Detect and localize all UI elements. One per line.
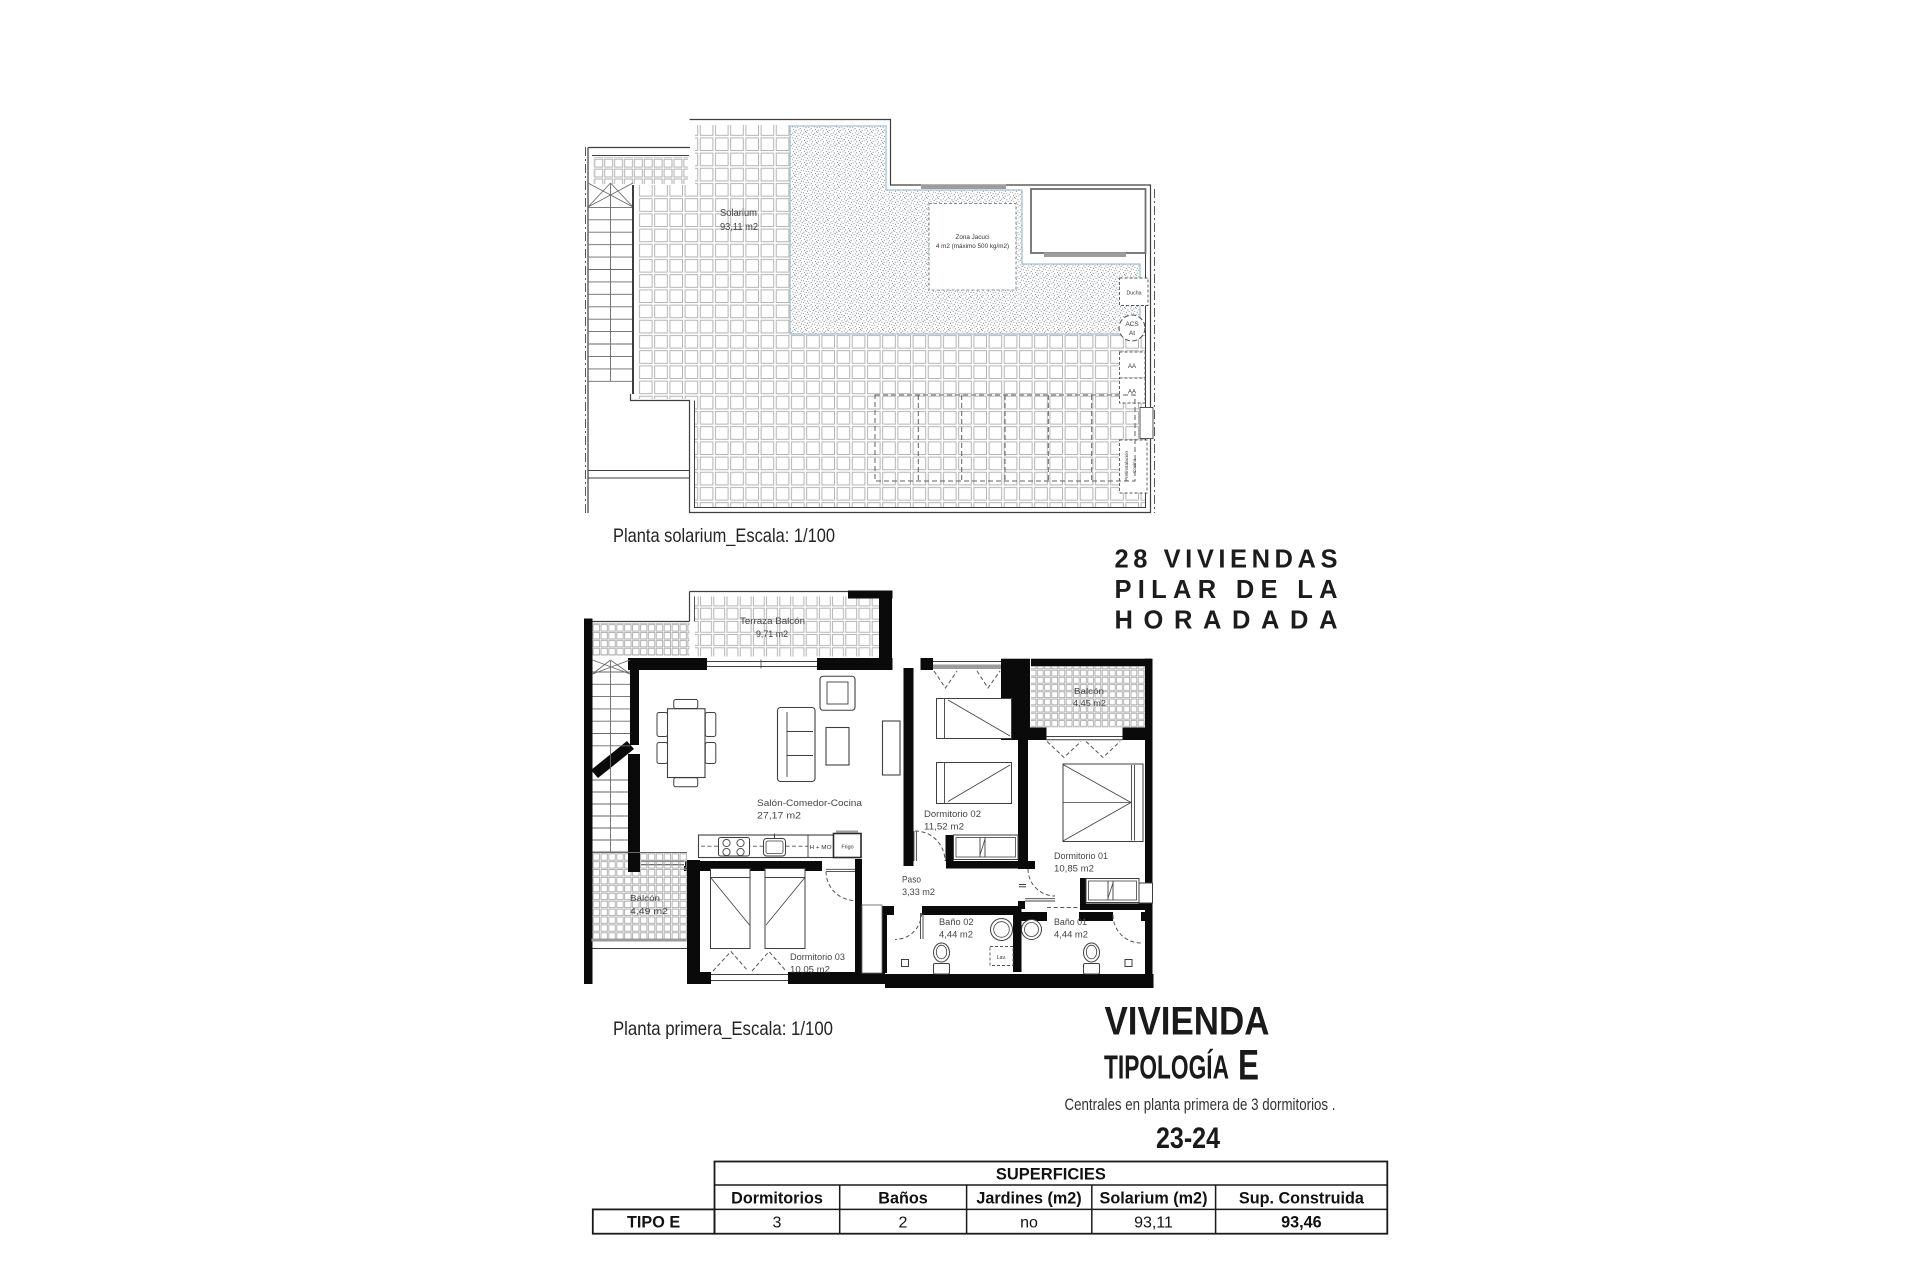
svg-text:4,49 m2: 4,49 m2	[630, 906, 668, 916]
svg-text:Solarium (m2): Solarium (m2)	[1100, 1190, 1208, 1208]
svg-text:Sup. Construida: Sup. Construida	[1239, 1190, 1365, 1208]
svg-text:Paso: Paso	[902, 875, 921, 885]
svg-text:VIVIENDA: VIVIENDA	[1105, 1000, 1270, 1044]
svg-text:Baños: Baños	[878, 1190, 927, 1208]
svg-text:4,44 m2: 4,44 m2	[1054, 930, 1088, 940]
svg-text:Balcón: Balcón	[630, 893, 660, 903]
svg-text:Zona Jacuci: Zona Jacuci	[956, 234, 990, 241]
svg-text:no: no	[1020, 1215, 1038, 1232]
svg-text:H + MO: H + MO	[810, 845, 832, 851]
svg-text:TIPO E: TIPO E	[627, 1214, 680, 1232]
svg-text:At: At	[1129, 330, 1135, 337]
svg-text:Frigo: Frigo	[841, 845, 853, 851]
svg-text:Planta primera_Escala: 1/100: Planta primera_Escala: 1/100	[613, 1018, 833, 1040]
svg-text:Centrales en planta primera de: Centrales en planta primera de 3 dormito…	[1065, 1096, 1336, 1114]
svg-text:ACS: ACS	[1125, 321, 1139, 328]
svg-text:11,52 m2: 11,52 m2	[924, 822, 964, 832]
svg-text:Terraza Balcón: Terraza Balcón	[740, 616, 805, 626]
svg-text:4,44 m2: 4,44 m2	[939, 930, 973, 940]
svg-text:4,45 m2: 4,45 m2	[1073, 698, 1106, 708]
svg-text:Ducha: Ducha	[1127, 291, 1142, 297]
svg-text:AA: AA	[1128, 364, 1136, 370]
svg-text:93,46: 93,46	[1281, 1214, 1322, 1232]
svg-text:93,11 m2: 93,11 m2	[720, 221, 758, 233]
svg-text:Baño 02: Baño 02	[939, 917, 974, 927]
svg-text:3,33 m2: 3,33 m2	[902, 887, 935, 897]
svg-text:93,11: 93,11	[1134, 1215, 1173, 1232]
svg-text:4 m2 (máximo 500 kg/m2): 4 m2 (máximo 500 kg/m2)	[936, 243, 1009, 250]
svg-text:3: 3	[773, 1215, 782, 1232]
svg-text:E: E	[1238, 1042, 1259, 1090]
svg-text:Dormitorio 03: Dormitorio 03	[790, 952, 845, 962]
svg-text:TIPOLOGÍA: TIPOLOGÍA	[1104, 1049, 1229, 1086]
svg-text:Jardines (m2): Jardines (m2)	[976, 1190, 1081, 1208]
svg-text:Dormitorio 01: Dormitorio 01	[1054, 851, 1108, 861]
svg-text:10,05 m2: 10,05 m2	[790, 965, 830, 975]
svg-text:Balcón: Balcón	[1074, 686, 1104, 696]
svg-text:Pretinstalación: Pretinstalación	[1124, 450, 1129, 481]
svg-text:Salón-Comedor-Cocina: Salón-Comedor-Cocina	[757, 798, 863, 809]
svg-text:9,71 m2: 9,71 m2	[756, 629, 788, 639]
svg-text:2: 2	[899, 1215, 908, 1232]
svg-text:10,85 m2: 10,85 m2	[1054, 864, 1094, 874]
svg-text:Solarium: Solarium	[720, 207, 757, 219]
svg-text:Lav.: Lav.	[997, 955, 1006, 961]
svg-text:Dormitorios: Dormitorios	[731, 1190, 823, 1208]
svg-text:Baño 01: Baño 01	[1054, 917, 1087, 927]
svg-text:SUPERFICIES: SUPERFICIES	[996, 1166, 1106, 1184]
svg-text:27,17 m2: 27,17 m2	[757, 811, 801, 822]
svg-text:Planta solarium_Escala: 1/100: Planta solarium_Escala: 1/100	[613, 525, 835, 547]
svg-text:Dormitorio 02: Dormitorio 02	[924, 809, 981, 819]
svg-text:23-24: 23-24	[1156, 1122, 1221, 1155]
